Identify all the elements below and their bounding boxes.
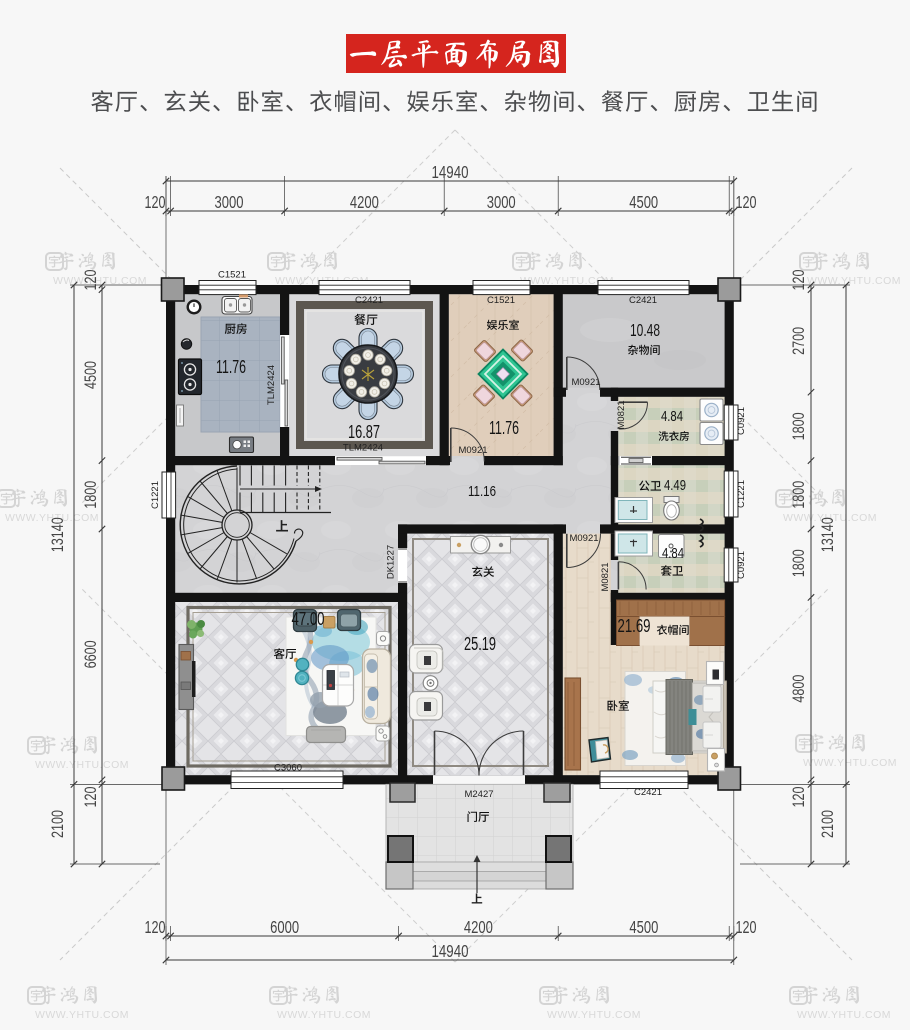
svg-text:1800: 1800 <box>81 481 100 509</box>
svg-text:TLM2424: TLM2424 <box>343 443 383 454</box>
svg-text:11.16: 11.16 <box>468 483 496 500</box>
svg-text:2700: 2700 <box>789 327 808 355</box>
svg-text:M2427: M2427 <box>464 789 493 800</box>
svg-text:C0921: C0921 <box>736 551 747 579</box>
svg-text:DK1227: DK1227 <box>386 545 397 579</box>
svg-text:120: 120 <box>81 270 100 291</box>
svg-text:4.49: 4.49 <box>664 477 686 494</box>
svg-text:6600: 6600 <box>81 640 100 668</box>
svg-text:11.76: 11.76 <box>489 417 519 438</box>
svg-text:1800: 1800 <box>789 549 808 577</box>
svg-text:4.84: 4.84 <box>662 545 684 562</box>
svg-text:14940: 14940 <box>432 162 469 182</box>
svg-text:13140: 13140 <box>48 517 67 552</box>
svg-text:120: 120 <box>736 917 757 937</box>
svg-text:4200: 4200 <box>464 917 493 937</box>
svg-text:3000: 3000 <box>215 192 244 212</box>
svg-text:4500: 4500 <box>629 917 658 937</box>
svg-text:1800: 1800 <box>789 412 808 440</box>
svg-text:M0921: M0921 <box>571 377 600 388</box>
svg-text:2100: 2100 <box>818 810 837 838</box>
svg-text:M0821: M0821 <box>616 400 627 429</box>
svg-text:C2421: C2421 <box>634 787 662 798</box>
svg-text:10.48: 10.48 <box>630 320 660 340</box>
svg-text:C1521: C1521 <box>487 295 515 306</box>
svg-text:13140: 13140 <box>818 517 837 552</box>
svg-text:C1521: C1521 <box>218 270 246 281</box>
svg-text:120: 120 <box>789 787 808 808</box>
svg-text:120: 120 <box>789 270 808 291</box>
svg-text:3000: 3000 <box>487 192 516 212</box>
svg-text:21.69: 21.69 <box>618 616 651 636</box>
svg-text:C1221: C1221 <box>150 481 161 509</box>
svg-text:TLM2424: TLM2424 <box>266 365 277 405</box>
svg-text:C0921: C0921 <box>736 407 747 435</box>
svg-text:4800: 4800 <box>789 675 808 703</box>
svg-text:4500: 4500 <box>81 361 100 389</box>
svg-text:C1221: C1221 <box>736 480 747 508</box>
svg-text:C2421: C2421 <box>355 295 383 306</box>
svg-text:1800: 1800 <box>789 481 808 509</box>
svg-text:M0821: M0821 <box>600 562 611 591</box>
svg-text:4.84: 4.84 <box>661 408 683 425</box>
svg-text:120: 120 <box>145 192 166 212</box>
svg-text:25.19: 25.19 <box>464 633 496 654</box>
svg-text:11.76: 11.76 <box>216 356 246 377</box>
svg-text:14940: 14940 <box>432 941 469 961</box>
svg-text:4200: 4200 <box>350 192 379 212</box>
svg-text:M0921: M0921 <box>569 533 598 544</box>
svg-text:C2421: C2421 <box>629 295 657 306</box>
svg-text:4500: 4500 <box>629 192 658 212</box>
svg-text:C3060: C3060 <box>274 763 302 774</box>
svg-text:M0921: M0921 <box>458 445 487 456</box>
svg-text:16.87: 16.87 <box>348 421 380 442</box>
svg-text:120: 120 <box>81 787 100 808</box>
svg-text:2100: 2100 <box>48 810 67 838</box>
svg-text:47.00: 47.00 <box>292 608 325 629</box>
svg-text:6000: 6000 <box>270 917 299 937</box>
svg-text:120: 120 <box>145 917 166 937</box>
svg-text:120: 120 <box>736 192 757 212</box>
